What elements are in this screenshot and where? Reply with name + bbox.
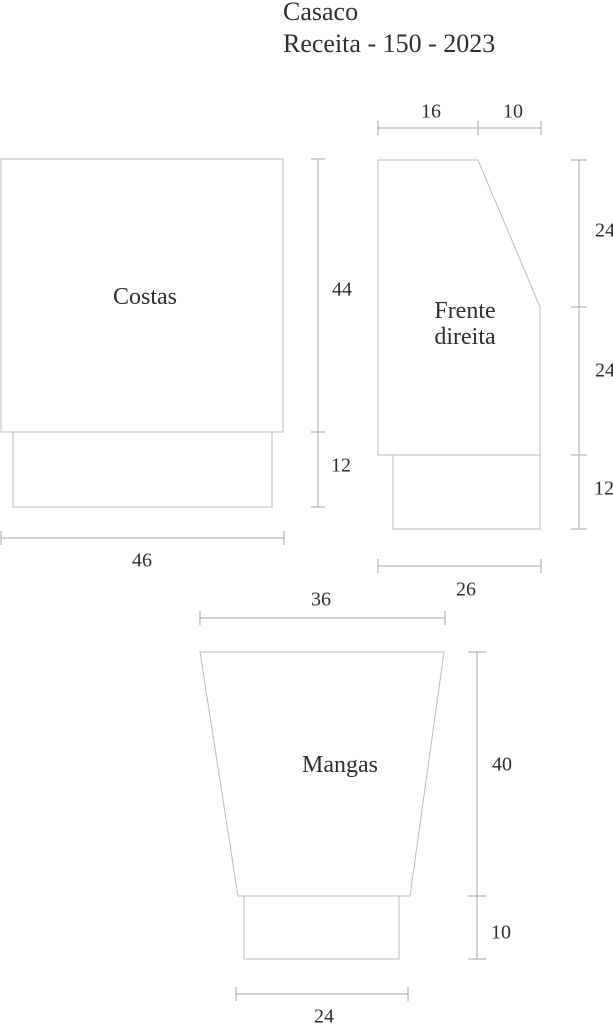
frente-direita-side-dimension-line xyxy=(571,160,587,529)
frente-direita-label-line-2: direita xyxy=(434,324,495,350)
frente-direita-width-dimension-line xyxy=(378,559,541,573)
frente-direita-ribbing-outline xyxy=(393,455,540,529)
frente-neck-width-label: 10 xyxy=(503,101,523,124)
frente-shoulder-width-label: 16 xyxy=(421,101,441,124)
mangas-ribbing-height-label: 10 xyxy=(491,922,511,945)
costas-body-height-label: 44 xyxy=(332,279,352,302)
costas-height-dimension-line xyxy=(311,159,325,507)
frente-lower-side-height-label: 24 xyxy=(595,360,613,383)
costas-piece-label: Costas xyxy=(113,284,177,310)
mangas-cuff-dimension-line xyxy=(236,987,408,1001)
frente-upper-side-height-label: 24 xyxy=(595,220,613,243)
pattern-diagram xyxy=(0,0,613,1024)
frente-ribbing-height-label: 12 xyxy=(594,478,613,501)
costas-width-label: 46 xyxy=(132,550,152,573)
mangas-body-height-label: 40 xyxy=(492,754,512,777)
costas-ribbing-height-label: 12 xyxy=(331,455,351,478)
mangas-top-dimension-line xyxy=(200,611,445,625)
mangas-piece-label: Mangas xyxy=(302,752,378,778)
knitting-pattern-sheet: Casaco Receita - 150 - 2023 Costas 44 12… xyxy=(0,0,613,1024)
frente-direita-label-line-1: Frente xyxy=(434,298,495,324)
page-title: Casaco Receita - 150 - 2023 xyxy=(283,0,495,60)
mangas-side-dimension-line xyxy=(468,652,486,959)
frente-direita-piece-label: Frente direita xyxy=(434,298,495,350)
frente-width-label: 26 xyxy=(456,579,476,602)
mangas-ribbing-outline xyxy=(244,896,399,959)
costas-width-dimension-line xyxy=(1,531,284,545)
mangas-top-width-label: 36 xyxy=(311,589,331,612)
costas-ribbing-outline xyxy=(13,432,272,507)
title-line-2: Receita - 150 - 2023 xyxy=(283,28,495,60)
title-line-1: Casaco xyxy=(283,0,495,28)
mangas-cuff-width-label: 24 xyxy=(314,1006,334,1024)
